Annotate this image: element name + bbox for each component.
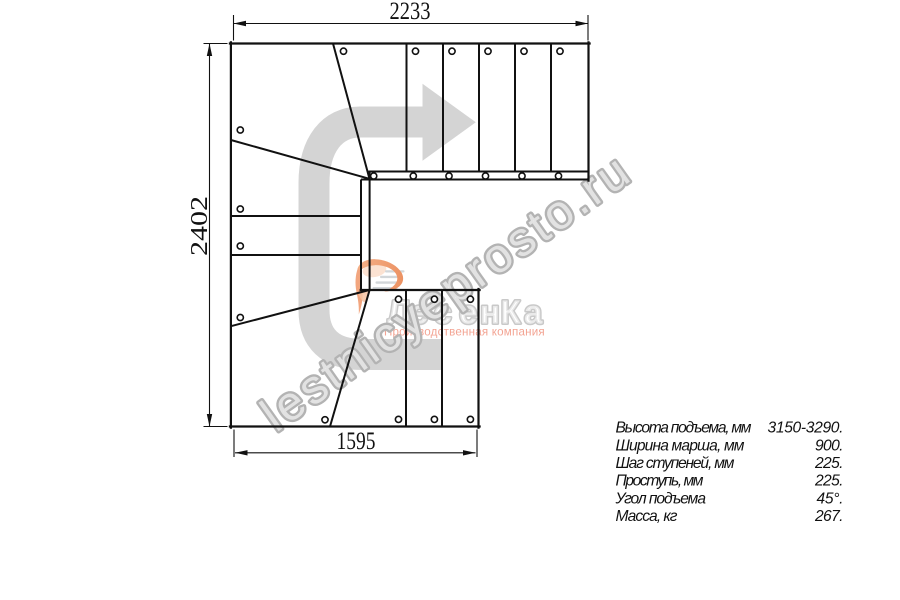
svg-text:1595: 1595 [337, 428, 376, 455]
svg-text:267.: 267. [814, 508, 844, 525]
svg-text:225.: 225. [814, 473, 844, 490]
svg-text:45°.: 45°. [817, 490, 844, 507]
svg-text:Шаг ступеней, мм: Шаг ступеней, мм [616, 455, 735, 472]
svg-text:900.: 900. [815, 437, 844, 454]
svg-text:3150-3290.: 3150-3290. [768, 420, 844, 437]
svg-text:Угол подъема: Угол подъема [615, 490, 707, 507]
svg-text:Проступь, мм: Проступь, мм [616, 473, 704, 490]
svg-text:2233: 2233 [390, 0, 431, 25]
svg-text:Высота подъема, мм: Высота подъема, мм [616, 420, 752, 437]
svg-text:Масса, кг: Масса, кг [616, 508, 678, 525]
svg-text:2402: 2402 [187, 196, 213, 256]
svg-text:225.: 225. [814, 455, 844, 472]
svg-text:Ширина марша, мм: Ширина марша, мм [616, 437, 745, 454]
